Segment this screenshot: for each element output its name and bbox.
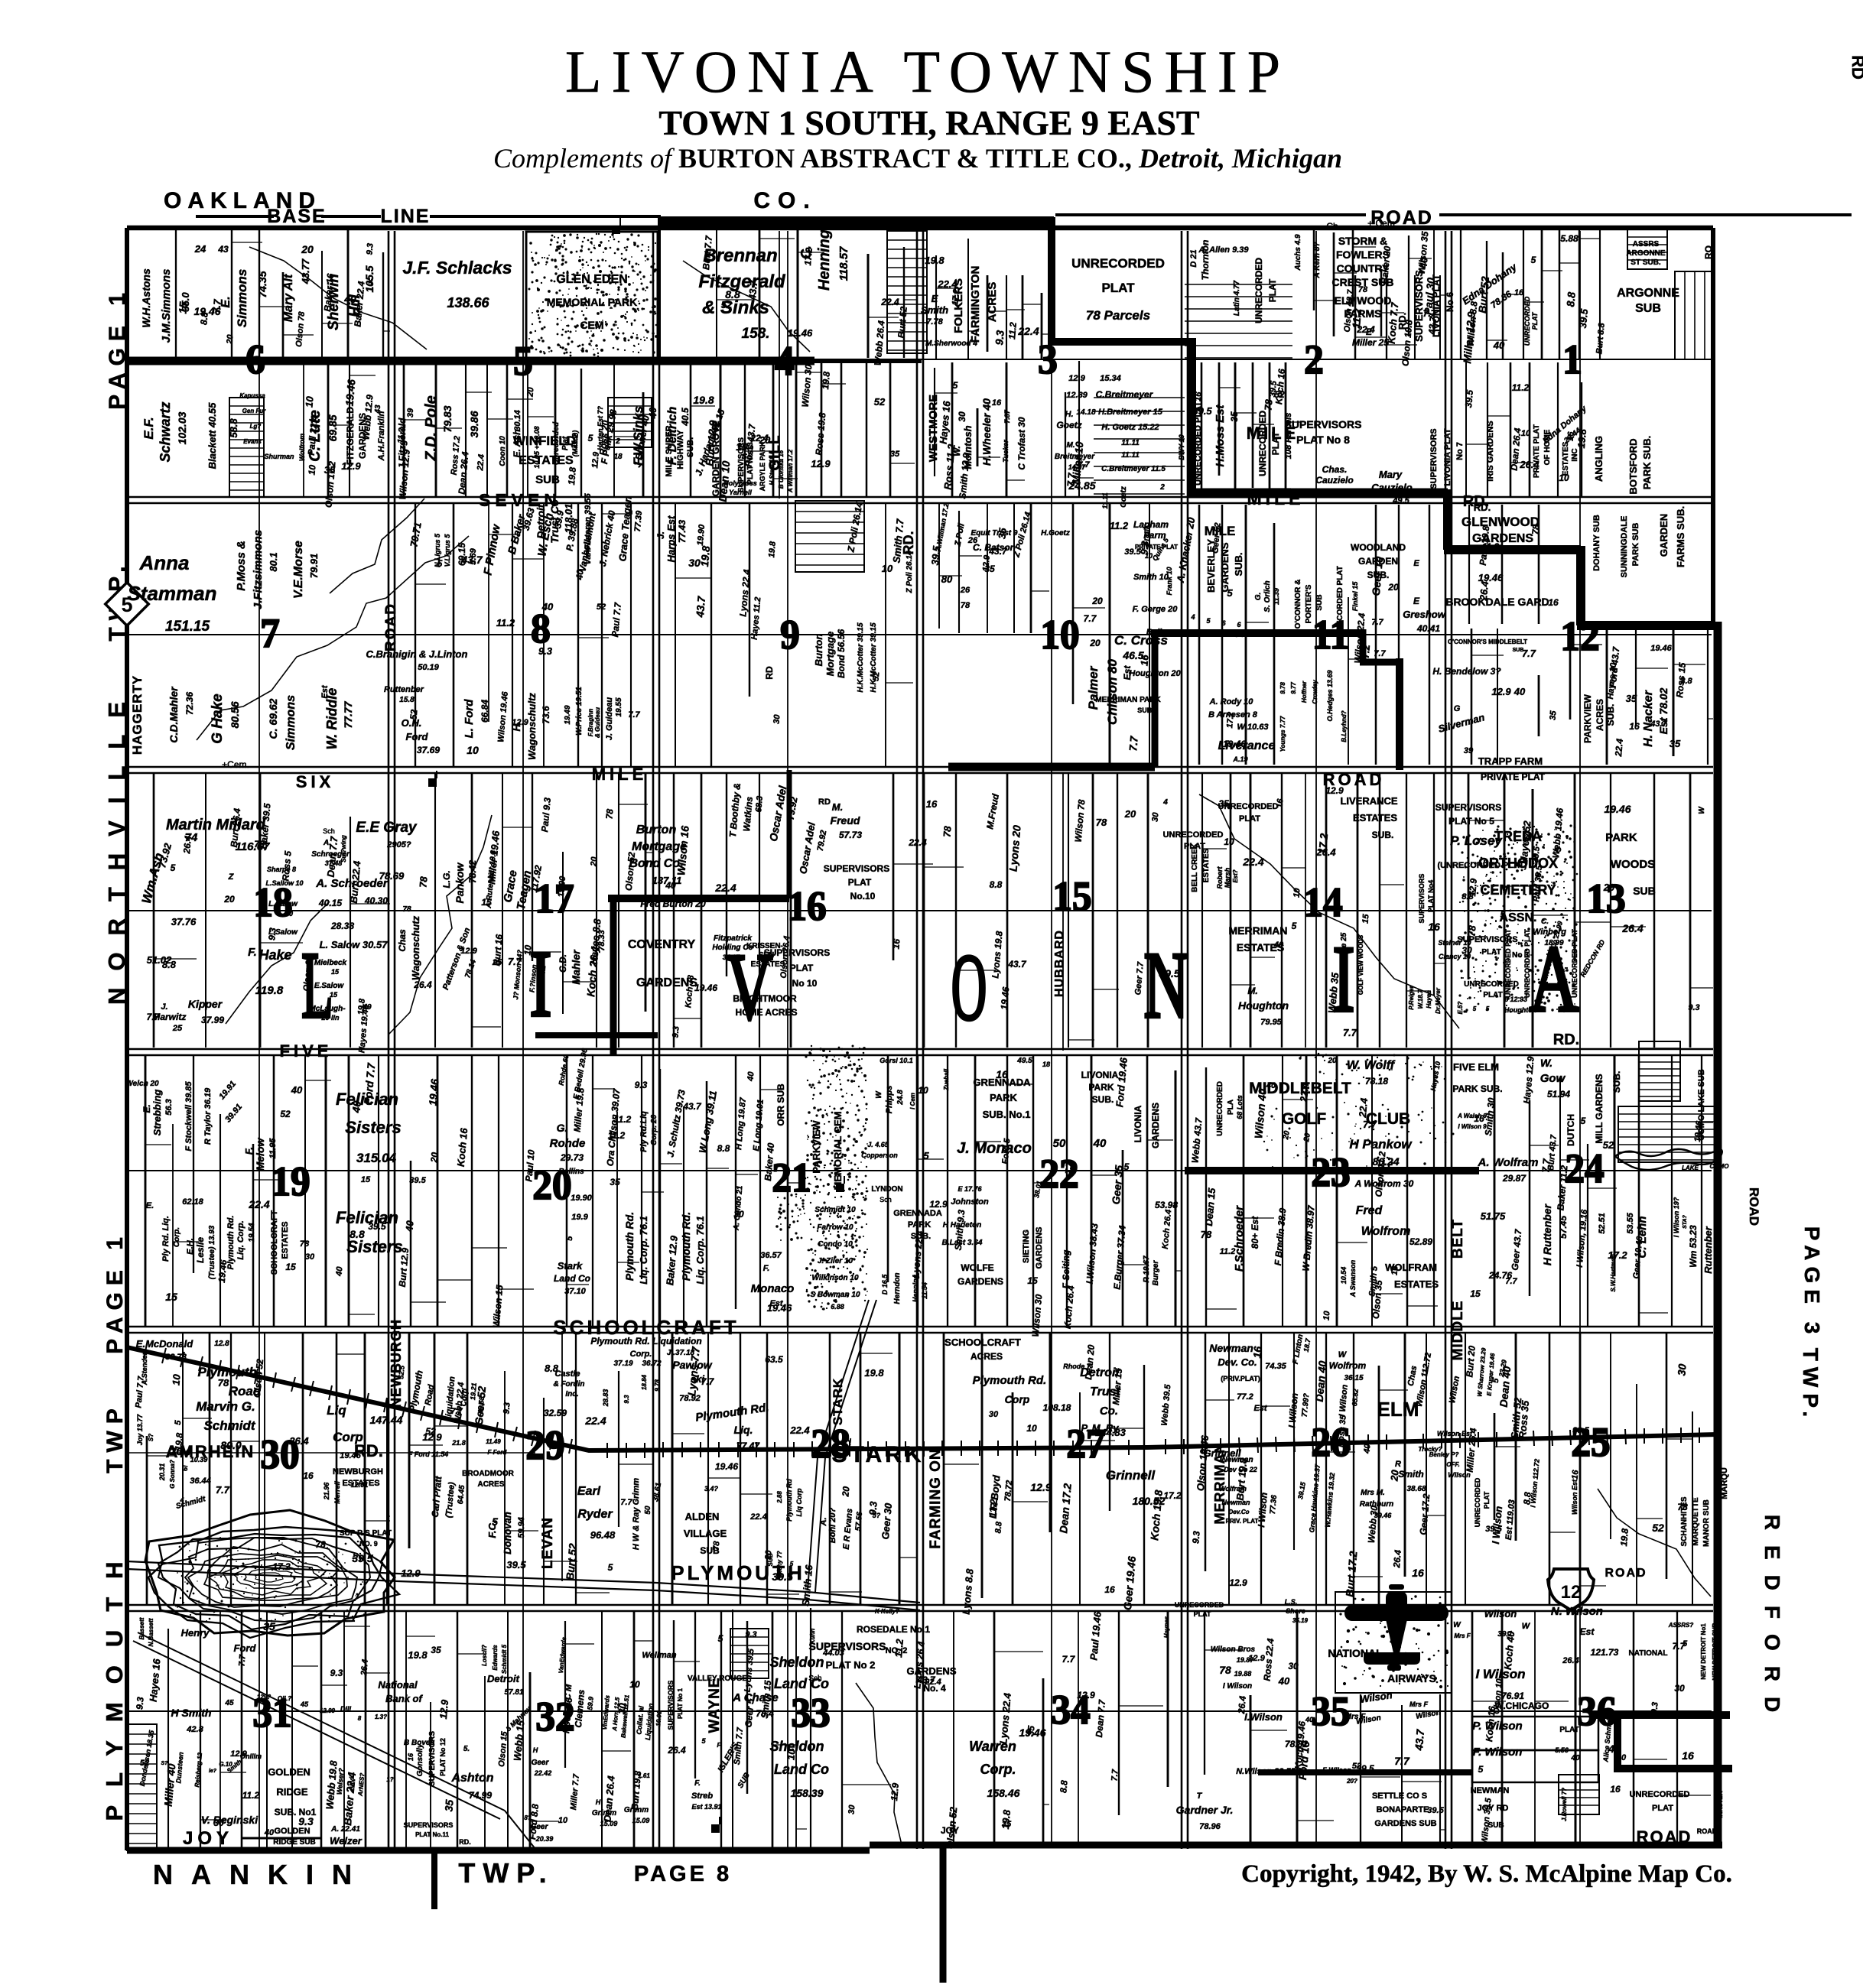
svg-text:Wellman: Wellman [642,1651,676,1660]
svg-text:7.7: 7.7 [1505,1277,1517,1286]
svg-text:35: 35 [1549,710,1559,720]
svg-text:19.8: 19.8 [925,255,945,266]
svg-text:TWP: TWP [102,1402,128,1473]
svg-text:Crowley: Crowley [1312,680,1318,704]
svg-text:SUPERVISORS: SUPERVISORS [1418,874,1426,924]
svg-text:MERRIMAN: MERRIMAN [1229,924,1288,937]
svg-text:32.59: 32.59 [544,1408,567,1418]
svg-text:W: W [1338,1350,1348,1359]
svg-text:Sisters: Sisters [345,1118,401,1137]
svg-text:Bassett: Bassett [138,1617,145,1639]
svg-text:40: 40 [1278,1675,1290,1687]
svg-text:40: 40 [1093,1137,1107,1150]
svg-text:PLAT No.11: PLAT No.11 [415,1831,449,1838]
svg-text:REDFORD: REDFORD [1761,1515,1784,1727]
svg-text:GOLF: GOLF [1282,1110,1326,1128]
svg-text:19.8: 19.8 [820,371,832,390]
svg-text:H W & Ray Grimm: H W & Ray Grimm [632,1478,641,1550]
svg-text:(UNRECORDED PLAT): (UNRECORDED PLAT) [1437,861,1526,870]
svg-text:NANKIN: NANKIN [153,1859,370,1890]
svg-text:ROAD: ROAD [1697,1827,1718,1835]
svg-text:36.57: 36.57 [760,1251,782,1260]
svg-text:PRIV. PLAT: PRIV. PLAT [1226,1518,1259,1525]
svg-text:ROAD: ROAD [1747,1187,1761,1226]
svg-text:22.42: 22.42 [534,1769,552,1777]
svg-text:E.: E. [146,1201,154,1210]
svg-text:SUB.: SUB. [1092,1094,1114,1105]
svg-text:57.73: 57.73 [839,830,862,840]
svg-text:16: 16 [1138,654,1150,666]
svg-text:E.5?: E.5? [1457,1001,1464,1014]
svg-text:10: 10 [1026,1423,1037,1434]
svg-text:39.5: 39.5 [929,545,942,566]
svg-text:7.7: 7.7 [1084,613,1097,624]
svg-text:H: H [533,1746,538,1754]
svg-text:N.Bassett: N.Bassett [148,1618,154,1646]
svg-text:Detroit: Detroit [535,503,547,538]
svg-text:16: 16 [926,798,938,810]
svg-text:18: 18 [1042,1061,1050,1068]
svg-text:Equit Trust 9: Equit Trust 9 [971,529,1018,538]
svg-text:23: 23 [1311,1150,1350,1195]
svg-text:9.3: 9.3 [365,243,375,255]
svg-text:Schmidt: Schmidt [203,1418,255,1433]
svg-text:Smith: Smith [921,304,948,316]
svg-text:2: 2 [1159,483,1165,492]
svg-text:TOWN 1 SOUTH, RANGE 9 EAST: TOWN 1 SOUTH, RANGE 9 EAST [658,103,1199,142]
svg-text:26.4: 26.4 [413,979,432,990]
svg-text:11.2: 11.2 [496,617,515,629]
svg-text:& Fordin: & Fordin [553,1380,584,1389]
svg-text:19.46: 19.46 [1650,644,1672,653]
svg-text:RD.: RD. [1474,502,1491,513]
svg-text:PLAT: PLAT [1270,431,1281,455]
svg-text:RO: RO [1703,245,1714,259]
svg-text:22.4: 22.4 [1613,738,1625,758]
svg-text:C Trofast 30: C Trofast 30 [1016,417,1027,469]
svg-text:Land Co: Land Co [774,1762,829,1777]
svg-text:19.55: 19.55 [615,697,623,716]
svg-text:33.78: 33.78 [165,1353,187,1362]
svg-text:Streb: Streb [691,1791,713,1801]
svg-text:19.8: 19.8 [408,1649,428,1661]
svg-text:52: 52 [721,299,733,310]
svg-text:5: 5 [513,339,533,384]
svg-text:UNRECORDED: UNRECORDED [1630,1790,1690,1799]
svg-text:UNRECORDED: UNRECORDED [1175,1601,1224,1609]
svg-text:L. Salow 30.57: L. Salow 30.57 [320,939,389,950]
svg-text:78: 78 [218,1377,229,1389]
svg-text:6.88: 6.88 [831,1303,844,1311]
svg-text:MILE: MILE [1247,489,1305,508]
svg-text:5.88: 5.88 [1560,233,1579,244]
svg-text:W.: W. [1540,1057,1552,1069]
svg-text:39.5: 39.5 [409,1176,426,1185]
svg-text:52.89: 52.89 [1409,1236,1432,1247]
svg-text:10: 10 [1559,473,1569,483]
svg-text:43.7: 43.7 [1007,959,1027,970]
svg-text:UNRECORDED: UNRECORDED [1253,258,1264,323]
svg-text:M.: M. [832,801,843,813]
svg-text:4: 4 [1162,798,1168,807]
svg-text:7: 7 [260,611,280,656]
svg-text:15: 15 [1361,913,1371,924]
svg-text:19.46: 19.46 [216,1259,229,1283]
svg-text:Ch: Ch [1326,221,1338,232]
svg-text:12.9: 12.9 [422,1431,442,1443]
svg-text:NATIONAL: NATIONAL [1328,1647,1383,1659]
svg-text:11.49: 11.49 [486,1438,501,1445]
svg-text:Zueball: Zueball [943,1068,950,1091]
svg-text:O.Hedges 13.69: O.Hedges 13.69 [1326,670,1334,721]
svg-text:Plymouth Rd.: Plymouth Rd. [680,1212,692,1281]
svg-text:8.8: 8.8 [725,288,740,300]
svg-text:11.2: 11.2 [570,433,580,450]
svg-text:Fitzgerald: Fitzgerald [698,271,786,292]
svg-text:Plymouth Rd. Liquidation: Plymouth Rd. Liquidation [590,1336,701,1346]
svg-text:TWP.: TWP. [1799,1348,1822,1423]
svg-text:19.8: 19.8 [1575,428,1588,449]
svg-text:ASSRS?: ASSRS? [1668,1622,1694,1629]
svg-text:11.2: 11.2 [396,427,407,444]
svg-text:11.2: 11.2 [1110,520,1129,531]
svg-text:78: 78 [1530,524,1541,535]
svg-text:39.5: 39.5 [772,1571,792,1583]
svg-text:Henning: Henning [816,229,833,291]
svg-text:49.5: 49.5 [1392,496,1409,505]
svg-text:26.4: 26.4 [1315,846,1336,858]
svg-text:16: 16 [1548,597,1559,608]
svg-text:Chas: Chas [397,929,408,952]
svg-text:80.56: 80.56 [229,701,241,728]
svg-text:PLAT: PLAT [1194,1610,1211,1618]
svg-text:35: 35 [1626,693,1637,704]
svg-text:5: 5 [1227,587,1233,599]
svg-text:22.4: 22.4 [789,1424,810,1436]
svg-text:Ryder: Ryder [577,1508,613,1521]
svg-text:16: 16 [1571,1469,1581,1480]
svg-text:40: 40 [284,910,293,918]
svg-text:Farrow 10: Farrow 10 [817,1223,853,1232]
svg-text:S Bowman 10: S Bowman 10 [810,1291,860,1299]
svg-text:ESTATES: ESTATES [1353,812,1397,823]
svg-text:NEW DETROIT SUB: NEW DETROIT SUB [1712,1623,1718,1680]
svg-text:43.7: 43.7 [988,546,1008,557]
svg-text:PARK SUB: PARK SUB [1631,523,1640,567]
svg-text:19.8: 19.8 [173,1432,185,1451]
svg-text:& Guideau: & Guideau [594,707,601,738]
svg-text:AIRWAYS: AIRWAYS [1387,1672,1436,1684]
svg-text:7.7: 7.7 [1078,460,1090,469]
svg-text:ELMWOOD: ELMWOOD [1335,294,1392,307]
svg-text:10: 10 [918,1085,928,1096]
svg-text:Wolfrom: Wolfrom [1361,1225,1411,1238]
svg-text:74.35: 74.35 [256,271,268,297]
svg-text:17.2: 17.2 [1163,1490,1182,1501]
svg-text:10: 10 [522,944,533,956]
svg-text:ESTATES: ESTATES [281,1221,290,1259]
svg-text:Leslie: Leslie [195,1237,206,1263]
svg-text:Goetz: Goetz [1120,486,1128,508]
svg-text:Dill: Dill [340,1705,352,1713]
svg-text:ESTATES: ESTATES [1562,441,1570,476]
svg-text:35: 35 [1002,1820,1012,1829]
svg-text:Trust Co: Trust Co [548,499,561,544]
svg-text:F. Gerge 20: F. Gerge 20 [1133,605,1179,614]
svg-text:UNRECORDED: UNRECORDED [1216,1081,1224,1136]
svg-text:11.2: 11.2 [242,1790,260,1801]
svg-text:22.4: 22.4 [924,1678,941,1687]
svg-text:121.73: 121.73 [1591,1647,1619,1658]
svg-text:LIVONIA: LIVONIA [1133,1105,1143,1142]
svg-text:7.7: 7.7 [237,1654,247,1667]
svg-text:7.7: 7.7 [1423,308,1437,319]
svg-text:Mielbeck: Mielbeck [314,959,347,967]
svg-text:10: 10 [303,395,315,408]
svg-text:22.4: 22.4 [1017,325,1039,337]
svg-text:Simmons: Simmons [284,695,297,750]
svg-text:78: 78 [961,601,971,610]
svg-text:3.4?: 3.4? [704,1485,719,1493]
svg-text:+ Cem: + Cem [1367,218,1395,229]
svg-text:19.46: 19.46 [1604,803,1631,815]
svg-text:20: 20 [840,1486,851,1498]
svg-text:5: 5 [1486,1005,1490,1012]
svg-text:35: 35 [1311,1689,1350,1734]
svg-text:52: 52 [874,396,886,408]
svg-text:16: 16 [1566,430,1576,441]
svg-text:52: 52 [1603,1139,1614,1151]
svg-text:No 10: No 10 [792,978,818,989]
svg-text:E.F.: E.F. [141,417,156,439]
svg-text:9.3: 9.3 [671,1026,681,1038]
svg-text:P.Reiger: P.Reiger [1408,985,1415,1009]
svg-text:12: 12 [1561,1582,1582,1603]
svg-text:Mary: Mary [1379,469,1403,480]
svg-text:7.7: 7.7 [1673,1641,1686,1652]
svg-text:Herndon: Herndon [893,1272,902,1304]
svg-text:Haynes: Haynes [1163,1616,1170,1638]
svg-text:29: 29 [525,1423,564,1468]
svg-text:8: 8 [358,1715,362,1722]
svg-text:J.M.Simmons: J.M.Simmons [160,269,173,343]
svg-text:9.3: 9.3 [330,1668,343,1678]
svg-text:Bond 56.56: Bond 56.56 [836,629,847,678]
svg-text:I Cem: I Cem [909,1093,916,1109]
svg-text:Plymouth Rd: Plymouth Rd [785,1479,793,1522]
svg-text:E.McDonald: E.McDonald [136,1338,193,1350]
svg-text:5: 5 [790,1561,794,1567]
svg-text:24: 24 [1565,1146,1604,1191]
svg-text:ARGYLE PARK: ARGYLE PARK [759,441,766,491]
svg-text:22.4: 22.4 [1357,1097,1370,1119]
svg-text:TWP.: TWP. [458,1857,554,1889]
svg-text:45: 45 [224,1699,234,1707]
svg-text:Shurman: Shurman [264,453,294,460]
svg-text:Liq.: Liq. [734,1424,753,1436]
svg-text:12.9: 12.9 [889,1782,901,1801]
svg-text:Ply Rd. Liq.: Ply Rd. Liq. [161,1216,171,1262]
svg-text:30: 30 [989,1410,999,1419]
svg-text:15.8: 15.8 [399,696,415,704]
svg-text:37.99: 37.99 [201,1015,224,1025]
svg-text:8.8: 8.8 [717,1143,730,1154]
svg-text:77.36: 77.36 [1269,1494,1279,1514]
svg-text:29.73: 29.73 [560,1152,584,1163]
svg-text:19.46: 19.46 [340,1451,361,1460]
svg-text:39.5: 39.5 [1192,405,1212,417]
svg-text:38.68: 38.68 [1406,1485,1426,1493]
svg-text:12.9: 12.9 [1248,1654,1265,1663]
svg-text:2905?: 2905? [386,840,411,849]
svg-text:L.Salow: L.Salow [268,900,298,908]
svg-text:National: National [378,1679,418,1691]
svg-text:19.90: 19.90 [696,524,707,546]
svg-text:Phipps: Phipps [885,1086,894,1114]
svg-text:No 7: No 7 [1455,442,1465,460]
svg-text:7.7: 7.7 [216,1484,230,1496]
svg-text:78.69: 78.69 [379,870,405,882]
svg-text:12.9: 12.9 [811,458,831,469]
svg-text:Bank of: Bank of [385,1693,423,1704]
svg-text:19.8: 19.8 [566,466,578,486]
svg-text:10: 10 [558,1816,568,1825]
svg-text:Ruttenber: Ruttenber [1702,1226,1714,1273]
svg-text:Gorsl 10.1: Gorsl 10.1 [879,1057,913,1064]
svg-text:52.5: 52.5 [397,1365,406,1379]
svg-text:2: 2 [1304,337,1324,382]
svg-text:30: 30 [1151,811,1161,822]
svg-text:30: 30 [213,1817,224,1828]
svg-text:SUPERVISORS: SUPERVISORS [764,947,830,958]
svg-text:K Kelly?: K Kelly? [875,1608,899,1615]
svg-text:20: 20 [525,386,535,398]
svg-text:H.Breitmeyer 15: H.Breitmeyer 15 [1098,408,1163,417]
svg-text:76.91: 76.91 [1501,1691,1524,1701]
svg-text:37.69: 37.69 [417,745,440,755]
svg-text:77.39: 77.39 [633,510,644,532]
svg-text:BRIGHTMOOR: BRIGHTMOOR [733,993,797,1004]
svg-text:H. Bendelow 3?: H. Bendelow 3? [1432,666,1501,677]
svg-text:E 17.76: E 17.76 [958,1185,982,1193]
svg-text:77.77: 77.77 [342,700,354,728]
svg-text:Mary Alt: Mary Alt [282,274,295,322]
svg-text:17.2: 17.2 [1359,644,1372,664]
svg-text:VALLEY ROUGE: VALLEY ROUGE [688,1675,747,1683]
svg-text:8.8: 8.8 [990,879,1003,890]
svg-text:21: 21 [772,1155,811,1200]
svg-text:Goetz: Goetz [1056,420,1081,430]
svg-text:ROAD: ROAD [1605,1567,1647,1580]
svg-text:PARK SUB.: PARK SUB. [1641,436,1653,490]
svg-text:Wilkinson 10: Wilkinson 10 [811,1274,858,1282]
svg-text:35: 35 [890,450,900,459]
svg-text:20: 20 [1616,1753,1627,1762]
svg-text:Ruttenber: Ruttenber [384,685,424,694]
svg-text:Mrs F: Mrs F [1409,1701,1429,1708]
svg-text:78: 78 [603,808,615,820]
svg-text:Sheldon: Sheldon [770,1655,824,1670]
svg-text:16: 16 [787,884,826,929]
svg-text:20: 20 [589,856,599,867]
svg-text:43.77: 43.77 [300,258,311,284]
svg-text:Youngs 7.77: Youngs 7.77 [1279,716,1286,752]
svg-text:22.4: 22.4 [908,837,927,848]
svg-text:30: 30 [688,557,701,569]
svg-text:40: 40 [334,1265,344,1277]
svg-text:7.7: 7.7 [1522,648,1536,659]
svg-text:10.54: 10.54 [1340,1267,1348,1285]
svg-text:1?: 1? [386,1776,393,1783]
svg-text:CO.: CO. [753,188,817,213]
svg-text:35: 35 [1025,1725,1036,1736]
svg-text:J. 4.65: J. 4.65 [867,1141,889,1148]
svg-text:Burton: Burton [636,823,677,836]
svg-text:12.9: 12.9 [1491,686,1511,697]
svg-text:50: 50 [644,1506,652,1515]
svg-text:LIVONIA PLAT: LIVONIA PLAT [1443,428,1452,486]
svg-text:PRIVATE PLAT: PRIVATE PLAT [1481,771,1546,782]
svg-text:78.18: 78.18 [1365,1076,1388,1087]
svg-text:Est: Est [320,684,330,698]
svg-text:118.01: 118.01 [563,504,574,534]
svg-text:19: 19 [271,1159,310,1204]
svg-text:64.45: 64.45 [457,1484,467,1504]
svg-text:PAGE 8: PAGE 8 [634,1862,732,1886]
svg-text:Mrs M.: Mrs M. [1361,1489,1385,1497]
svg-text:PLAT No 8: PLAT No 8 [1296,434,1350,446]
svg-text:Miller 25: Miller 25 [1352,337,1389,348]
svg-text:H Smith: H Smith [171,1707,212,1719]
svg-text:52.51: 52.51 [1598,1213,1607,1234]
svg-text:24: 24 [194,243,206,255]
svg-text:35: 35 [996,527,1008,539]
svg-text:ESTATES: ESTATES [1202,848,1211,882]
svg-text:J.F. Schlacks: J.F. Schlacks [402,258,512,278]
svg-text:H. Nacker: H. Nacker [1642,690,1655,747]
svg-text:9: 9 [780,612,800,658]
svg-text:Robert: Robert [1216,866,1224,888]
svg-text:MANOR SUB: MANOR SUB [1702,1499,1711,1547]
svg-text:21.8: 21.8 [451,1439,466,1447]
svg-text:H.Steel 19.5: H.Steel 19.5 [769,450,775,485]
svg-text:15: 15 [1470,1288,1481,1299]
svg-text:Felician: Felician [336,1208,398,1227]
svg-text:SUPERVISORS: SUPERVISORS [1285,418,1362,430]
svg-text:40: 40 [264,1828,275,1837]
svg-text:5.56: 5.56 [1555,1746,1569,1754]
svg-text:52: 52 [280,1109,291,1119]
svg-text:15: 15 [481,897,492,908]
svg-text:PLAT No 12: PLAT No 12 [439,1738,447,1776]
svg-text:9.3: 9.3 [502,1402,512,1415]
svg-text:20: 20 [1603,882,1615,893]
svg-text:Sch: Sch [879,1196,892,1204]
svg-text:MEMORIAL PARK: MEMORIAL PARK [547,296,637,308]
svg-text:11.2: 11.2 [608,1130,626,1141]
svg-text:15: 15 [165,1291,177,1303]
svg-text:PLAT No 2: PLAT No 2 [826,1659,876,1671]
svg-text:7.7: 7.7 [1394,1755,1410,1767]
svg-text:52: 52 [597,603,606,612]
svg-text:19.8: 19.8 [693,394,714,406]
svg-text:80+ Est: 80+ Est [1250,1216,1260,1249]
svg-text:39.5: 39.5 [1124,547,1141,557]
svg-text:40: 40 [1273,940,1284,950]
svg-text:M.: M. [1247,986,1257,996]
svg-text:C.: C. [1541,918,1549,926]
svg-text:78: 78 [417,875,429,888]
